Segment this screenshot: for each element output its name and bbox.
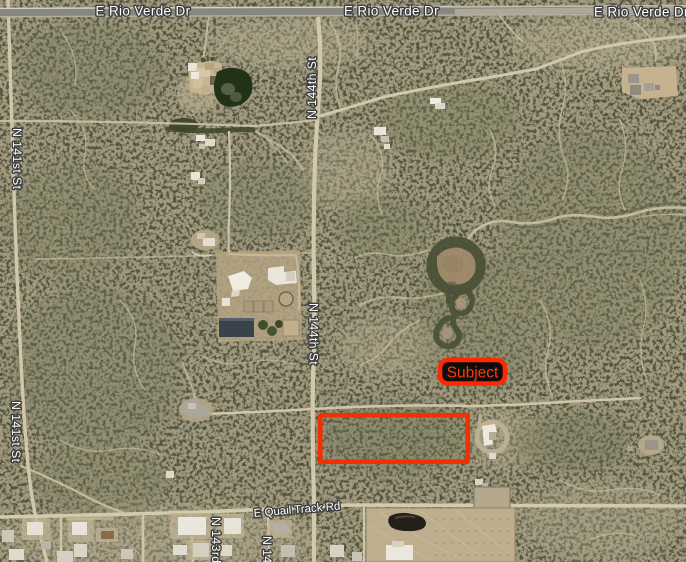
svg-text:N 141st St: N 141st St [10, 128, 24, 190]
svg-text:N 144th: N 144th [260, 536, 274, 562]
svg-text:E Rio Verde Dr: E Rio Verde Dr [344, 4, 439, 19]
svg-text:N 144th St: N 144th St [305, 57, 319, 119]
svg-text:E Rio Verde Dr: E Rio Verde Dr [594, 5, 686, 20]
svg-text:Subject: Subject [447, 365, 499, 382]
svg-text:E Rio Verde Dr: E Rio Verde Dr [96, 4, 191, 19]
svg-text:N 144th St: N 144th St [307, 303, 321, 365]
svg-text:N 141st St: N 141st St [9, 401, 23, 463]
svg-text:N 143rd Pl: N 143rd Pl [209, 517, 223, 562]
